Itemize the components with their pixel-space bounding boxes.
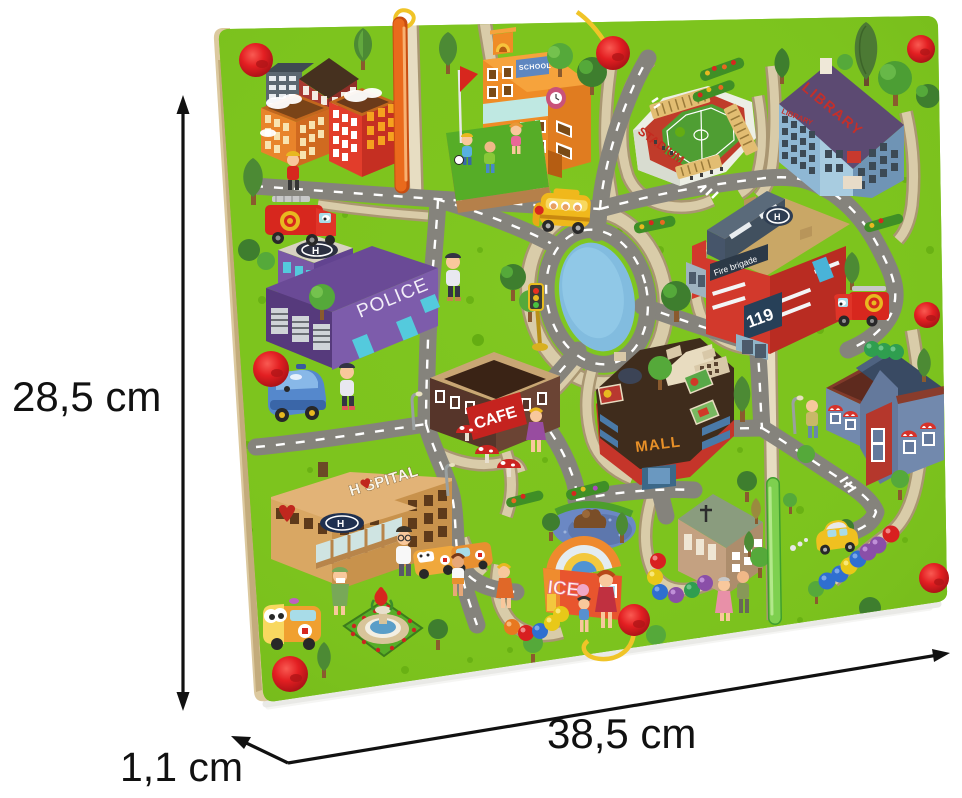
svg-text:28,5 cm: 28,5 cm — [12, 373, 161, 420]
svg-text:H: H — [312, 246, 319, 257]
svg-text:1,1 cm: 1,1 cm — [120, 744, 243, 790]
svg-text:38,5 cm: 38,5 cm — [547, 710, 696, 757]
svg-text:H: H — [774, 212, 781, 222]
svg-text:H: H — [337, 519, 344, 530]
